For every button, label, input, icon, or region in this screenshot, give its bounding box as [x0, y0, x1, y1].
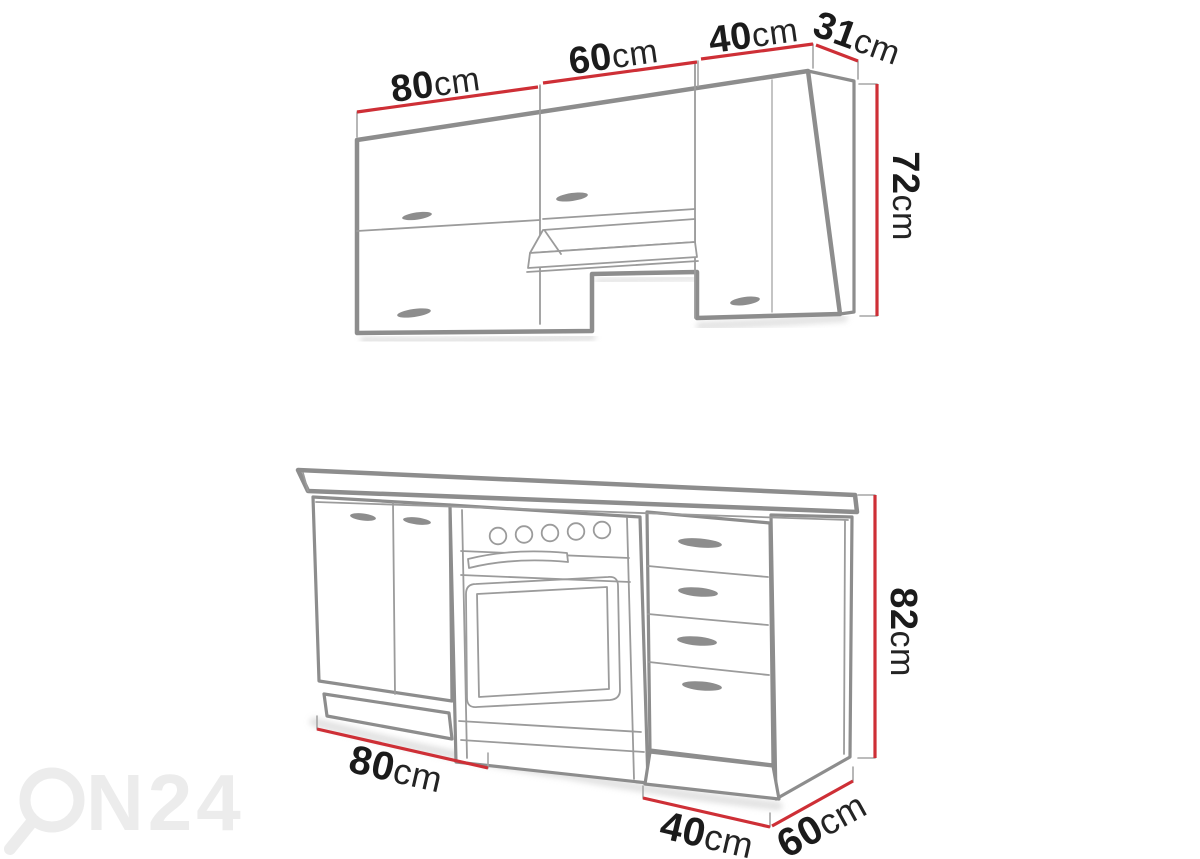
- base-cabinet-side-panel: [771, 515, 852, 799]
- kitchen-dimension-diagram: N24: [0, 0, 1200, 859]
- wall-cabinets-front: [357, 71, 840, 333]
- dimension-label-upper-72cm: 72cm: [884, 151, 926, 241]
- watermark-letters: N24: [86, 758, 245, 847]
- dimension-label-upper-40cm: 40cm: [706, 8, 801, 62]
- watermark-on24: N24: [10, 758, 245, 849]
- dimension-label-upper-60cm: 60cm: [566, 29, 661, 83]
- screenshot-canvas: N24: [0, 0, 1200, 859]
- watermark-magnifier-o-icon: [10, 773, 79, 849]
- base-side-panel-edge-line: [844, 521, 845, 754]
- wall-cabinet-shadow: [364, 337, 592, 341]
- drawer-unit-front: [647, 512, 773, 765]
- hood-recess-shadow: [598, 278, 694, 281]
- dimension-label-upper-31cm: 31cm: [808, 4, 907, 74]
- dimension-label-lower-82cm: 82cm: [882, 587, 924, 677]
- dimension-label-upper-80cm: 80cm: [388, 57, 483, 111]
- base-cabinet-80-front: [313, 497, 452, 701]
